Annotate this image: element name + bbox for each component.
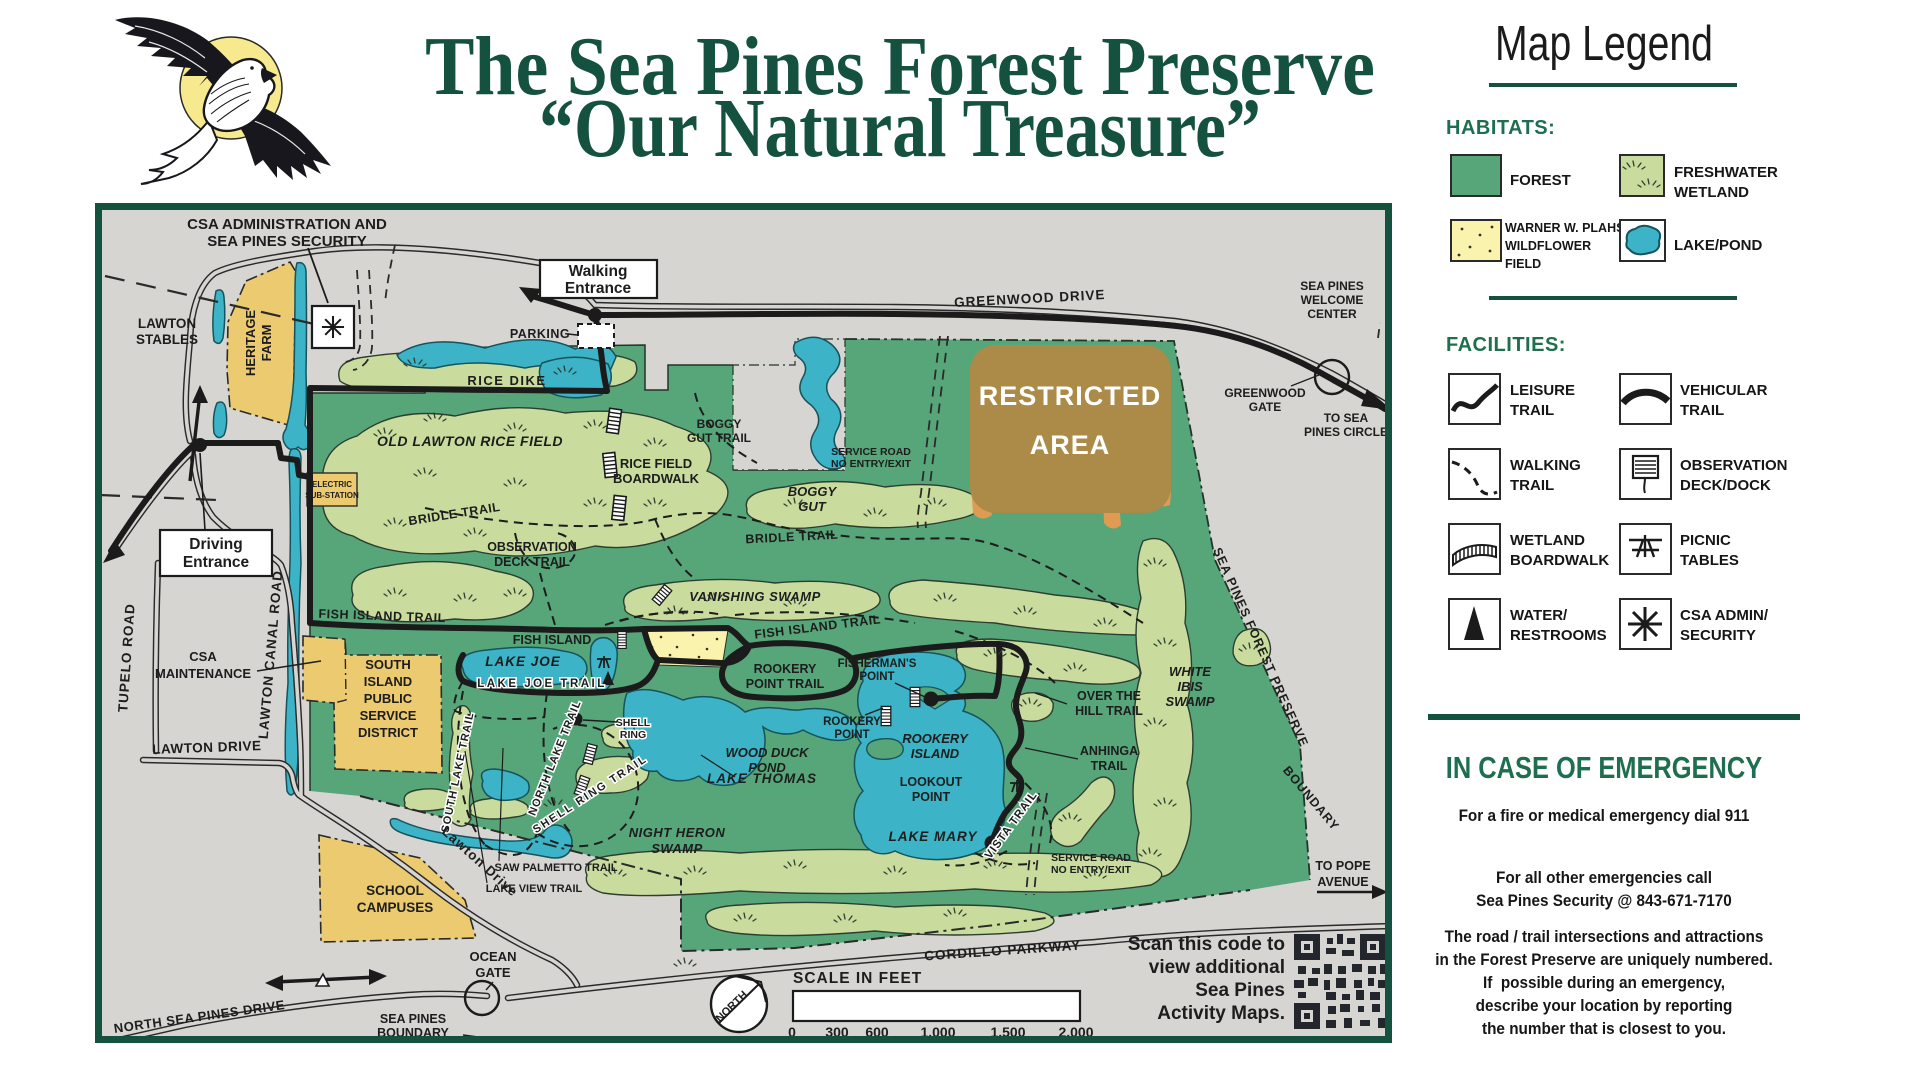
- svg-text:LAKE JOE TRAIL: LAKE JOE TRAIL: [477, 678, 607, 690]
- svg-text:RESTRICTED: RESTRICTED: [979, 381, 1162, 411]
- svg-text:POINT: POINT: [912, 790, 951, 804]
- svg-text:Activity Maps.: Activity Maps.: [1157, 1003, 1285, 1024]
- svg-text:BOARDWALK: BOARDWALK: [613, 471, 700, 486]
- svg-text:SEA PINES: SEA PINES: [380, 1012, 446, 1026]
- svg-text:LAKE THOMAS: LAKE THOMAS: [707, 771, 817, 786]
- svg-text:FISHERMAN'S: FISHERMAN'S: [838, 658, 917, 670]
- svg-text:CSA: CSA: [189, 649, 217, 664]
- svg-text:NO ENTRY/EXIT: NO ENTRY/EXIT: [1051, 864, 1132, 876]
- svg-text:SERVICE: SERVICE: [360, 708, 417, 723]
- svg-text:HERITAGE: HERITAGE: [243, 310, 258, 377]
- svg-text:WHITE: WHITE: [1169, 664, 1211, 679]
- svg-text:PINES CIRCLE: PINES CIRCLE: [1304, 425, 1388, 439]
- svg-text:AVENUE: AVENUE: [1317, 875, 1368, 889]
- svg-text:OCEAN: OCEAN: [470, 949, 517, 964]
- svg-text:Scan this code to: Scan this code to: [1128, 934, 1285, 955]
- svg-text:SCALE IN FEET: SCALE IN FEET: [793, 970, 922, 987]
- svg-text:DISTRICT: DISTRICT: [358, 725, 418, 740]
- svg-text:SUB-STATION: SUB-STATION: [305, 491, 359, 500]
- svg-text:OBSERVATION: OBSERVATION: [487, 540, 577, 554]
- svg-text:SWAMP: SWAMP: [651, 841, 703, 856]
- svg-text:ANHINGA: ANHINGA: [1080, 744, 1138, 758]
- svg-text:ROOKERY: ROOKERY: [902, 731, 969, 746]
- svg-text:GATE: GATE: [1249, 400, 1281, 414]
- svg-text:STABLES: STABLES: [136, 332, 198, 347]
- svg-text:CENTER: CENTER: [1307, 307, 1357, 321]
- svg-text:PUBLIC: PUBLIC: [364, 691, 413, 706]
- svg-text:RICE FIELD: RICE FIELD: [620, 456, 692, 471]
- svg-text:PARKING: PARKING: [510, 327, 570, 341]
- svg-text:HILL TRAIL: HILL TRAIL: [1075, 704, 1143, 718]
- svg-text:CAMPUSES: CAMPUSES: [357, 900, 434, 915]
- svg-text:Entrance: Entrance: [183, 554, 250, 571]
- svg-text:ISLAND: ISLAND: [911, 746, 960, 761]
- svg-text:POINT: POINT: [859, 671, 894, 683]
- svg-text:SAW PALMETTO TRAIL: SAW PALMETTO TRAIL: [494, 862, 617, 874]
- svg-text:IBIS: IBIS: [1177, 679, 1203, 694]
- svg-text:SEA PINES SECURITY: SEA PINES SECURITY: [207, 233, 366, 250]
- svg-text:POINT: POINT: [834, 729, 869, 741]
- svg-text:BOGGY: BOGGY: [788, 484, 838, 499]
- svg-text:BOGGY: BOGGY: [697, 417, 742, 431]
- svg-text:GUT TRAIL: GUT TRAIL: [687, 431, 751, 445]
- svg-text:RICE DIKE: RICE DIKE: [467, 373, 546, 388]
- svg-text:POINT TRAIL: POINT TRAIL: [746, 677, 825, 691]
- svg-text:SERVICE ROAD: SERVICE ROAD: [1051, 852, 1131, 864]
- svg-text:WOOD DUCK: WOOD DUCK: [725, 745, 810, 760]
- svg-text:SOUTH: SOUTH: [365, 657, 411, 672]
- svg-text:NO ENTRY/EXIT: NO ENTRY/EXIT: [831, 458, 912, 470]
- svg-text:ELECTRIC: ELECTRIC: [312, 480, 352, 489]
- svg-text:Sea Pines: Sea Pines: [1195, 980, 1285, 1001]
- svg-text:OLD LAWTON RICE FIELD: OLD LAWTON RICE FIELD: [377, 433, 563, 449]
- svg-text:Walking: Walking: [569, 263, 628, 280]
- svg-text:SERVICE ROAD: SERVICE ROAD: [831, 446, 911, 458]
- svg-text:SCHOOL: SCHOOL: [366, 883, 424, 898]
- svg-text:DECK TRAIL: DECK TRAIL: [494, 555, 570, 569]
- svg-text:CSA ADMINISTRATION AND: CSA ADMINISTRATION AND: [187, 216, 387, 233]
- svg-text:Driving: Driving: [189, 536, 242, 553]
- svg-text:Entrance: Entrance: [565, 280, 632, 297]
- svg-text:NIGHT HERON: NIGHT HERON: [629, 825, 726, 840]
- svg-text:TRAIL: TRAIL: [1091, 759, 1128, 773]
- svg-text:FISH ISLAND: FISH ISLAND: [513, 633, 591, 647]
- svg-text:ISLAND: ISLAND: [364, 674, 412, 689]
- svg-text:view additional: view additional: [1149, 957, 1285, 978]
- svg-text:TO SEA: TO SEA: [1324, 411, 1369, 425]
- svg-text:FARM: FARM: [259, 325, 274, 362]
- svg-text:GREENWOOD: GREENWOOD: [1224, 386, 1306, 400]
- svg-text:OVER THE: OVER THE: [1077, 689, 1141, 703]
- svg-text:SEA PINES: SEA PINES: [1300, 279, 1364, 293]
- svg-text:AREA: AREA: [1030, 430, 1111, 460]
- svg-text:GATE: GATE: [475, 965, 510, 980]
- svg-text:MAINTENANCE: MAINTENANCE: [155, 666, 251, 681]
- svg-text:SWAMP: SWAMP: [1165, 694, 1214, 709]
- svg-text:LAKE JOE: LAKE JOE: [485, 654, 561, 669]
- svg-text:VANISHING SWAMP: VANISHING SWAMP: [689, 589, 821, 604]
- svg-text:SHELL: SHELL: [616, 717, 651, 729]
- svg-text:LAWTON: LAWTON: [138, 316, 196, 331]
- svg-text:GUT: GUT: [798, 499, 827, 514]
- svg-text:RING: RING: [620, 729, 646, 741]
- svg-text:LAKE MARY: LAKE MARY: [888, 829, 978, 844]
- svg-text:LOOKOUT: LOOKOUT: [900, 775, 963, 789]
- svg-text:TO POPE: TO POPE: [1315, 859, 1370, 873]
- svg-text:WELCOME: WELCOME: [1301, 293, 1364, 307]
- svg-text:ROOKERY: ROOKERY: [754, 662, 817, 676]
- svg-text:ROOKERY: ROOKERY: [823, 716, 881, 728]
